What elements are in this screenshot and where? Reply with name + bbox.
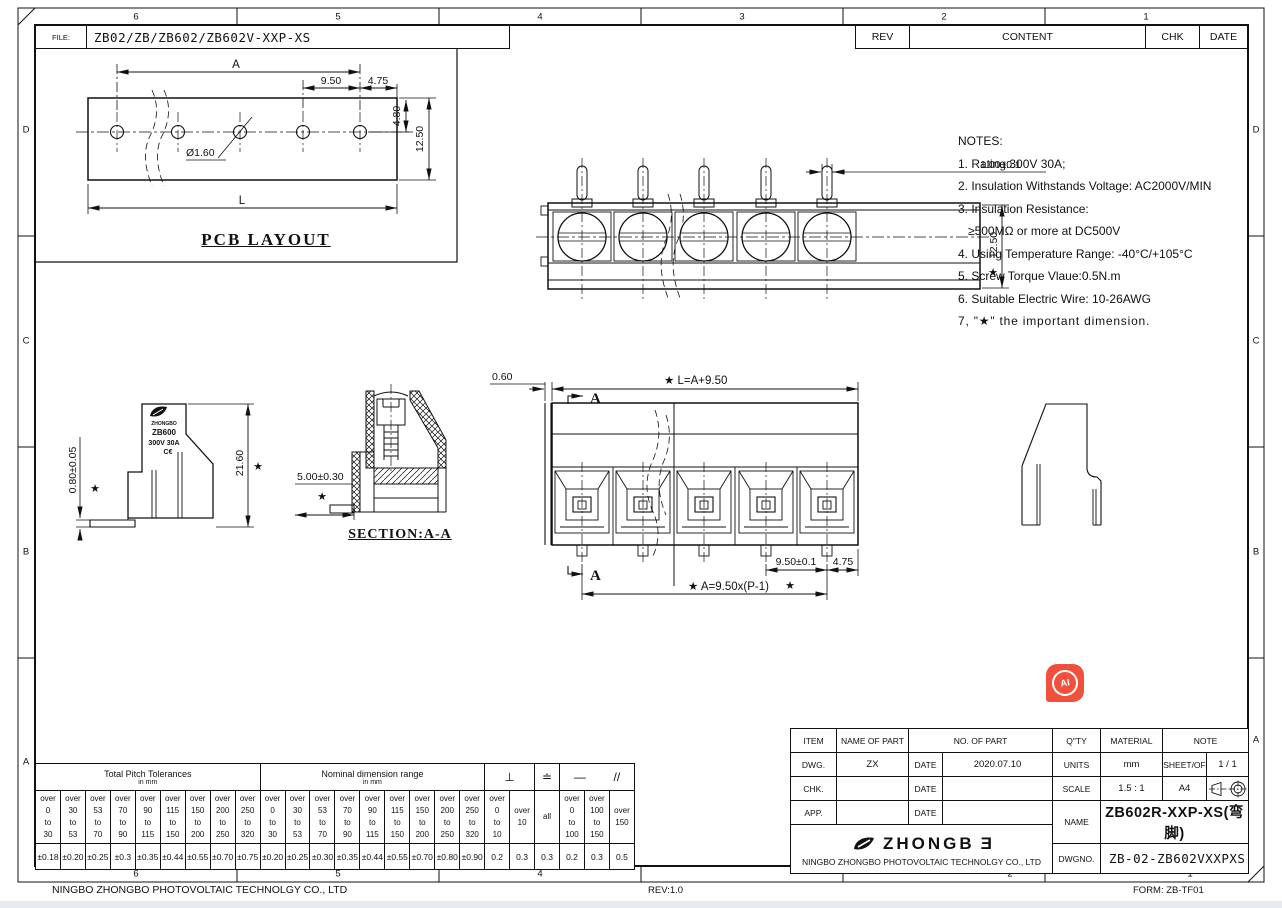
leaf-logo-icon [851,835,877,853]
zone-col-label: 3 [739,12,744,23]
scale-value: 1.5 : 1 [1101,777,1163,801]
note-header: NOTE [1163,729,1249,753]
range-cell: over150to200 [185,791,210,844]
dim-offset-5-00: 5.00±0.30 [297,471,344,483]
zone-row-label: B [1253,547,1259,558]
footer-form: FORM: ZB-TF01 [1133,885,1204,896]
sheet-of-label: SHEET/OF [1163,753,1207,777]
app-label: APP. [791,801,837,825]
zone-col-label: 6 [133,12,138,23]
brand-name: ZHONGBO [151,421,177,427]
units-label: UNITS [1053,753,1101,777]
dim-end-4-75: 4.75 [833,556,854,568]
chk-by-empty [837,777,909,801]
star-mark: ★ [785,579,795,592]
tolerance-value-cell: ±0.35 [135,844,160,870]
ai-assistant-button[interactable]: AI [1046,664,1084,702]
range-cell: over53to70 [310,791,335,844]
range-cell: over250to320 [235,791,260,844]
range-cell: over200to250 [435,791,460,844]
app-date-empty [943,801,1053,825]
section-mark-a-bottom: A [590,568,601,584]
zone-col-label-bottom: 4 [537,869,542,880]
tolerance-value-cell: ±0.3 [110,844,135,870]
notes-title: NOTES: [958,130,1253,153]
dwg-label: DWG. [791,753,837,777]
zone-col-label: 5 [335,12,340,23]
range-cell: over70to90 [335,791,360,844]
part-name-value: ZB602R-XXP-XS(弯脚) [1101,801,1249,844]
company-name: NINGBO ZHONGBO PHOTOVOLTAIC TECHNOLGY CO… [791,857,1052,867]
ai-icon: AI [1050,668,1080,698]
star-mark: ★ [253,460,263,473]
leaf-logo-icon [150,406,167,416]
material-header: MATERIAL [1101,729,1163,753]
dwg-by-value: ZX [837,753,909,777]
zone-row-label: D [1253,125,1260,136]
perpendicularity-symbol: ⊥ [485,764,535,791]
revision-header: REV CONTENT CHK DATE [855,25,1248,49]
range-cell: over30to53 [285,791,310,844]
company-logo-cell: ZHONGBƎ NINGBO ZHONGBO PHOTOVOLTAIC TECH… [791,825,1053,874]
dim-a-formula: ★ A=9.50x(P-1) [688,581,769,593]
front-view: 0.60 ★ L=A+9.50 A A 9.50±0.1 ★ 4.75 ★ A=… [490,371,858,600]
range-cell: over90to115 [135,791,160,844]
tolerance-table: Total Pitch Tolerancesin mm Nominal dime… [35,763,635,870]
zone-row-label: A [1253,735,1259,746]
dwg-date-value: 2020.07.10 [943,753,1053,777]
zone-row-label: B [23,547,29,558]
range-cell: over70to90 [110,791,135,844]
chk-label: CHK. [791,777,837,801]
zone-col-label: 4 [537,12,542,23]
tolerance-value-cell: ±0.18 [36,844,61,870]
dwgno-value: ZB-02-ZB602VXXPXS [1101,844,1249,874]
dim-4-80: 4.80 [391,106,403,127]
dim-wall-0-60: 0.60 [492,371,513,383]
qty-header: Q"TY [1053,729,1101,753]
tolerance-value-cell: ±0.55 [185,844,210,870]
name-of-part-header: NAME OF PART [837,729,909,753]
app-by-empty [837,801,909,825]
note-line: 4. Using Temperature Range: -40°C/+105°C [958,243,1253,266]
pcb-layout-title: PCB LAYOUT [201,230,330,250]
range-cell: over53to70 [85,791,110,844]
dim-12-50: 12.50 [414,126,426,152]
tolerance-value-cell: ±0.75 [235,844,260,870]
pcb-layout-view: A 9.50 4.75 4.80 12.50 Ø1.60 L [76,59,436,214]
note-line: 1. Rating:300V 30A; [958,153,1253,176]
straightness-parallelism-symbols: —// [560,764,635,791]
range-cell: over0to30 [36,791,61,844]
file-value: ZB02/ZB/ZB602/ZB602V-XXP-XS [87,26,509,48]
range-cell: over150 [609,791,634,844]
zone-row-label: D [23,125,30,136]
scale-label: SCALE [1053,777,1101,801]
item-header: ITEM [791,729,837,753]
zone-col-label-bottom: 6 [133,869,138,880]
range-cell: over200to250 [210,791,235,844]
content-col-header: CONTENT [910,26,1146,48]
range-cell: over115to150 [160,791,185,844]
tolerance-value-cell: ±0.90 [460,844,485,870]
tolerance-value-cell: ±0.20 [260,844,285,870]
total-pitch-header: Total Pitch Tolerancesin mm [36,764,261,791]
tolerance-value-cell: ±0.20 [60,844,85,870]
range-cell: over250to320 [460,791,485,844]
date-label: DATE [909,753,943,777]
dim-height-21-60: 21.60 [234,450,246,476]
date-label: DATE [909,777,943,801]
tolerance-value-cell: ±0.70 [210,844,235,870]
range-cell: over150to200 [410,791,435,844]
range-cell: over0to30 [260,791,285,844]
range-cell: over100to150 [584,791,609,844]
tolerance-value-cell: ±0.44 [360,844,385,870]
section-mark-a-top: A [590,391,601,407]
zone-col-label-bottom: 5 [335,869,340,880]
brand-model: ZB600 [152,428,177,437]
date-col-header: DATE [1200,26,1247,48]
units-value: mm [1101,753,1163,777]
page-edge-strip [0,901,1282,908]
nominal-range-header: Nominal dimension rangein mm [260,764,485,791]
section-view [330,384,446,513]
zone-row-label: C [23,336,30,347]
range-cell: over0to100 [560,791,585,844]
dim-9-50: 9.50 [321,75,342,87]
paper-size: A4 [1163,777,1207,801]
chk-date-empty [943,777,1053,801]
tolerance-value-cell: ±0.30 [310,844,335,870]
tolerance-value-cell: ±0.25 [85,844,110,870]
date-label: DATE [909,801,943,825]
flatness-symbol: ≐ [535,764,560,791]
zhongb-logo: ZHONGBƎ [791,831,1052,857]
brand-rating: 300V 30A [148,440,179,447]
note-line: ≥500MΩ or more at DC500V [958,220,1253,243]
dim-a: A [232,59,240,71]
range-cell: over0to10 [485,791,510,844]
tolerance-value-cell: 0.3 [584,844,609,870]
note-line: 7, "★" the important dimension. [958,310,1253,333]
file-box: FILE: ZB02/ZB/ZB602/ZB602V-XXP-XS [35,25,510,49]
note-line: 2. Insulation Withstands Voltage: AC2000… [958,175,1253,198]
note-line: 6. Suitable Electric Wire: 10-26AWG [958,288,1253,311]
range-cell: over115to150 [385,791,410,844]
tolerance-header-row: Total Pitch Tolerancesin mm Nominal dime… [36,764,635,791]
side-view: ZHONGBO ZB600 300V 30A C€ 0.80±0.05 ★ 21… [67,404,354,540]
footer-company: NINGBO ZHONGBO PHOTOVOLTAIC TECHNOLGY CO… [52,884,347,896]
tolerance-value-cell: 0.2 [485,844,510,870]
tolerance-range-row: over0to30 over30to53 over53to70 over70to… [36,791,635,844]
tolerance-value-cell: ±0.55 [385,844,410,870]
star-mark: ★ [317,490,327,503]
tolerance-value-cell: ±0.25 [285,844,310,870]
drawing-sheet: A 9.50 4.75 4.80 12.50 Ø1.60 L 1.00±0.1 … [0,0,1282,908]
zone-row-label: A [23,757,29,768]
note-line: 3. Insulation Resistance: [958,198,1253,221]
star-mark: ★ [90,482,100,495]
tolerance-value-cell: ±0.80 [435,844,460,870]
rev-col-header: REV [856,26,910,48]
zone-col-label: 2 [941,12,946,23]
section-title: SECTION:A-A [348,527,452,543]
dwgno-label: DWGNO. [1053,844,1101,874]
dim-length-formula: ★ L=A+9.50 [664,375,727,387]
zone-row-label: C [1253,336,1260,347]
dim-pitch-9-50: 9.50±0.1 [776,556,817,568]
chk-col-header: CHK [1146,26,1200,48]
tolerance-value-cell: 0.3 [510,844,535,870]
dim-pin-0-80: 0.80±0.05 [67,447,79,494]
dim-hole-dia: Ø1.60 [186,147,215,159]
brand-ce-mark: C€ [164,449,173,456]
tolerance-value-row: ±0.18±0.20±0.25±0.3±0.35±0.44±0.55±0.70±… [36,844,635,870]
tolerance-value-cell: ±0.44 [160,844,185,870]
range-cell: over30to53 [60,791,85,844]
dim-4-75: 4.75 [368,75,389,87]
tolerance-value-cell: ±0.70 [410,844,435,870]
tolerance-value-cell: ±0.35 [335,844,360,870]
title-block: ITEM NAME OF PART NO. OF PART Q"TY MATER… [790,728,1249,874]
footer-rev: REV:1.0 [648,885,683,896]
range-cell: over10 [510,791,535,844]
range-cell: all [535,791,560,844]
sheet-of-value: 1 / 1 [1207,753,1249,777]
zone-col-label: 1 [1143,12,1148,23]
no-of-part-header: NO. OF PART [909,729,1053,753]
file-label: FILE: [36,26,87,48]
range-cell: over90to115 [360,791,385,844]
notes-block: NOTES: 1. Rating:300V 30A; 2. Insulation… [958,130,1253,333]
dim-l: L [239,195,246,207]
note-line: 5. Screw Torque Vlaue:0.5N.m [958,265,1253,288]
tolerance-value-cell: 0.3 [535,844,560,870]
tolerance-value-cell: 0.5 [609,844,634,870]
tolerance-value-cell: 0.2 [560,844,585,870]
projection-symbol-icon [1207,777,1249,801]
name-label: NAME [1053,801,1101,844]
right-side-view [1022,404,1101,525]
